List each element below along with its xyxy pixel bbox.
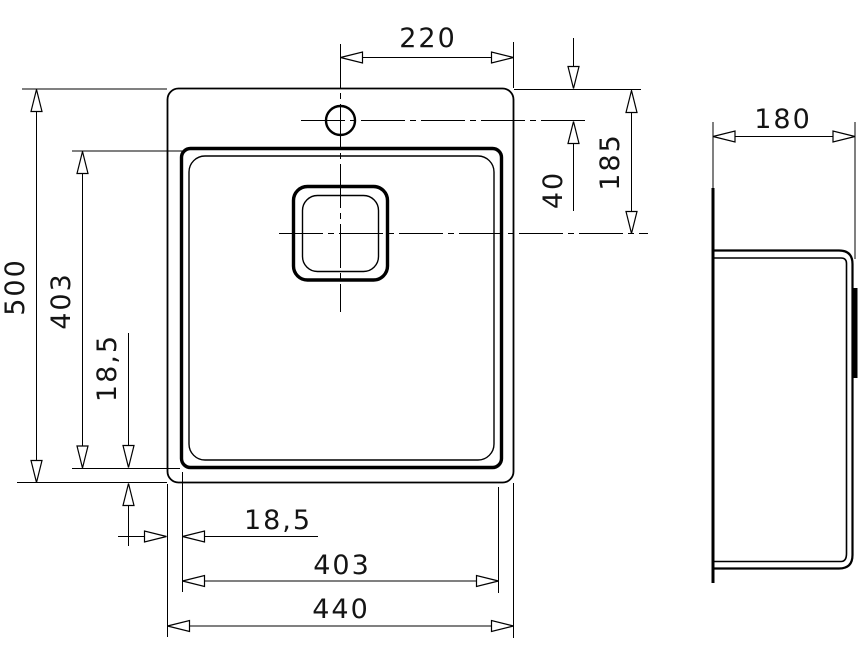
dim-label: 40 <box>538 171 569 209</box>
dim-label: 180 <box>754 104 812 135</box>
side-bowl-outer <box>714 251 853 569</box>
dim-label: 440 <box>312 594 370 625</box>
side-view <box>713 188 856 583</box>
dim-rim-to-drain: 185 <box>595 90 637 234</box>
arrowhead-icon <box>568 67 579 89</box>
dim-label: 18,5 <box>244 505 312 536</box>
arrowhead-icon <box>77 446 88 468</box>
arrowhead-icon <box>31 461 42 483</box>
dim-label: 403 <box>46 272 77 330</box>
arrowhead-icon <box>123 484 134 506</box>
dim-bowl-depth: 180 <box>713 104 855 259</box>
arrowhead-icon <box>168 621 190 632</box>
dim-label: 220 <box>399 23 457 54</box>
dim-bowl-inset-vertical: 18,5 <box>92 333 134 546</box>
arrowhead-icon <box>31 90 42 112</box>
technical-drawing: 220 40 185 500 403 1 <box>0 0 868 660</box>
arrowhead-icon <box>145 531 167 542</box>
dim-bowl-width: 403 <box>183 472 499 593</box>
dim-label: 185 <box>595 133 626 191</box>
arrowhead-icon <box>713 131 735 142</box>
dim-label: 18,5 <box>92 334 123 402</box>
arrowhead-icon <box>492 621 514 632</box>
dim-bowl-inset-horizontal: 18,5 <box>118 505 318 542</box>
arrowhead-icon <box>833 131 855 142</box>
dim-label: 500 <box>0 258 31 316</box>
arrowhead-icon <box>77 152 88 174</box>
arrowhead-icon <box>183 531 205 542</box>
arrowhead-icon <box>341 52 363 63</box>
arrowhead-icon <box>626 212 637 234</box>
side-bowl-inner <box>714 258 847 562</box>
arrowhead-icon <box>477 576 499 587</box>
plan-view <box>168 44 649 483</box>
bowl-rim <box>182 149 502 468</box>
dim-overall-length: 500 <box>0 89 167 483</box>
dim-label: 403 <box>313 550 371 581</box>
bowl-inner-edge <box>189 156 494 460</box>
arrowhead-icon <box>123 446 134 468</box>
drawing-canvas: 220 40 185 500 403 1 <box>0 0 868 660</box>
arrowhead-icon <box>568 122 579 144</box>
arrowhead-icon <box>183 576 205 587</box>
dim-faucet-to-right: 220 <box>341 23 514 88</box>
arrowhead-icon <box>492 52 514 63</box>
arrowhead-icon <box>626 91 637 113</box>
dim-bowl-length: 403 <box>46 151 186 469</box>
